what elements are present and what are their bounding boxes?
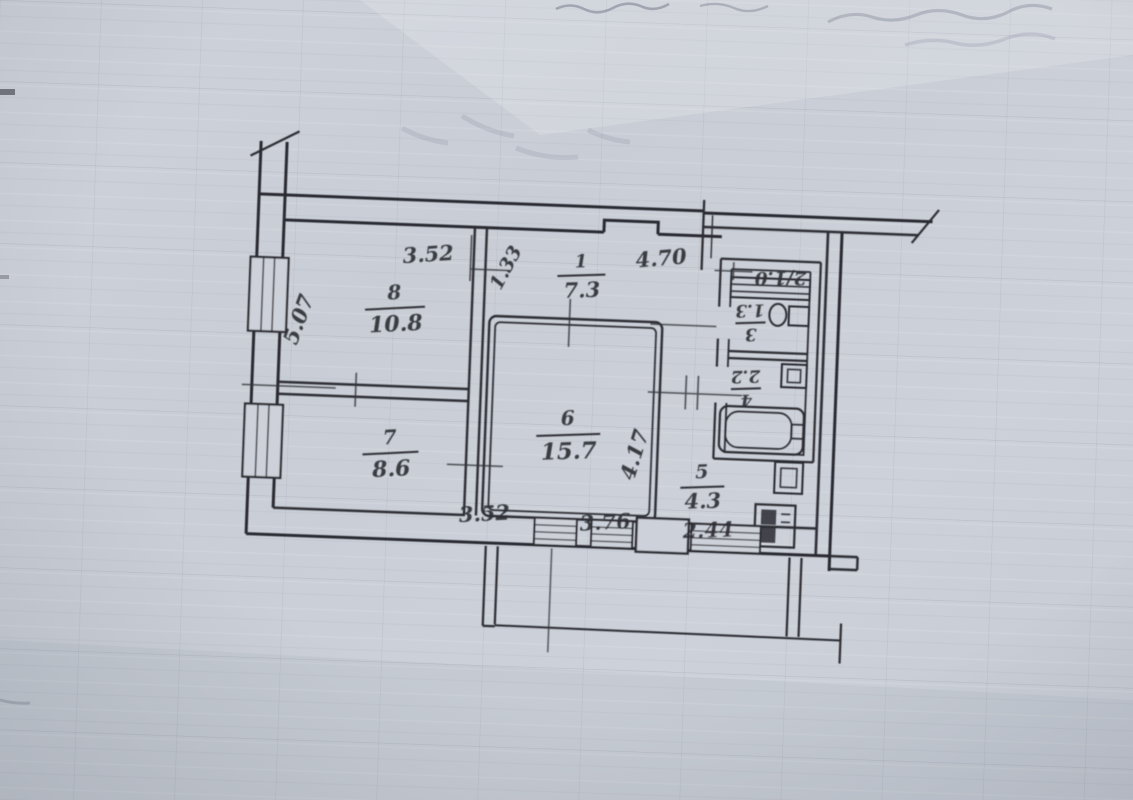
scanned-floorplan-photo: 3.52 1.33 4.70 5.07 4.17 3.52 3.76 2.44 … [0, 0, 1133, 800]
photo-vignette [0, 0, 1133, 800]
floorplan-image: 3.52 1.33 4.70 5.07 4.17 3.52 3.76 2.44 … [0, 0, 1133, 800]
